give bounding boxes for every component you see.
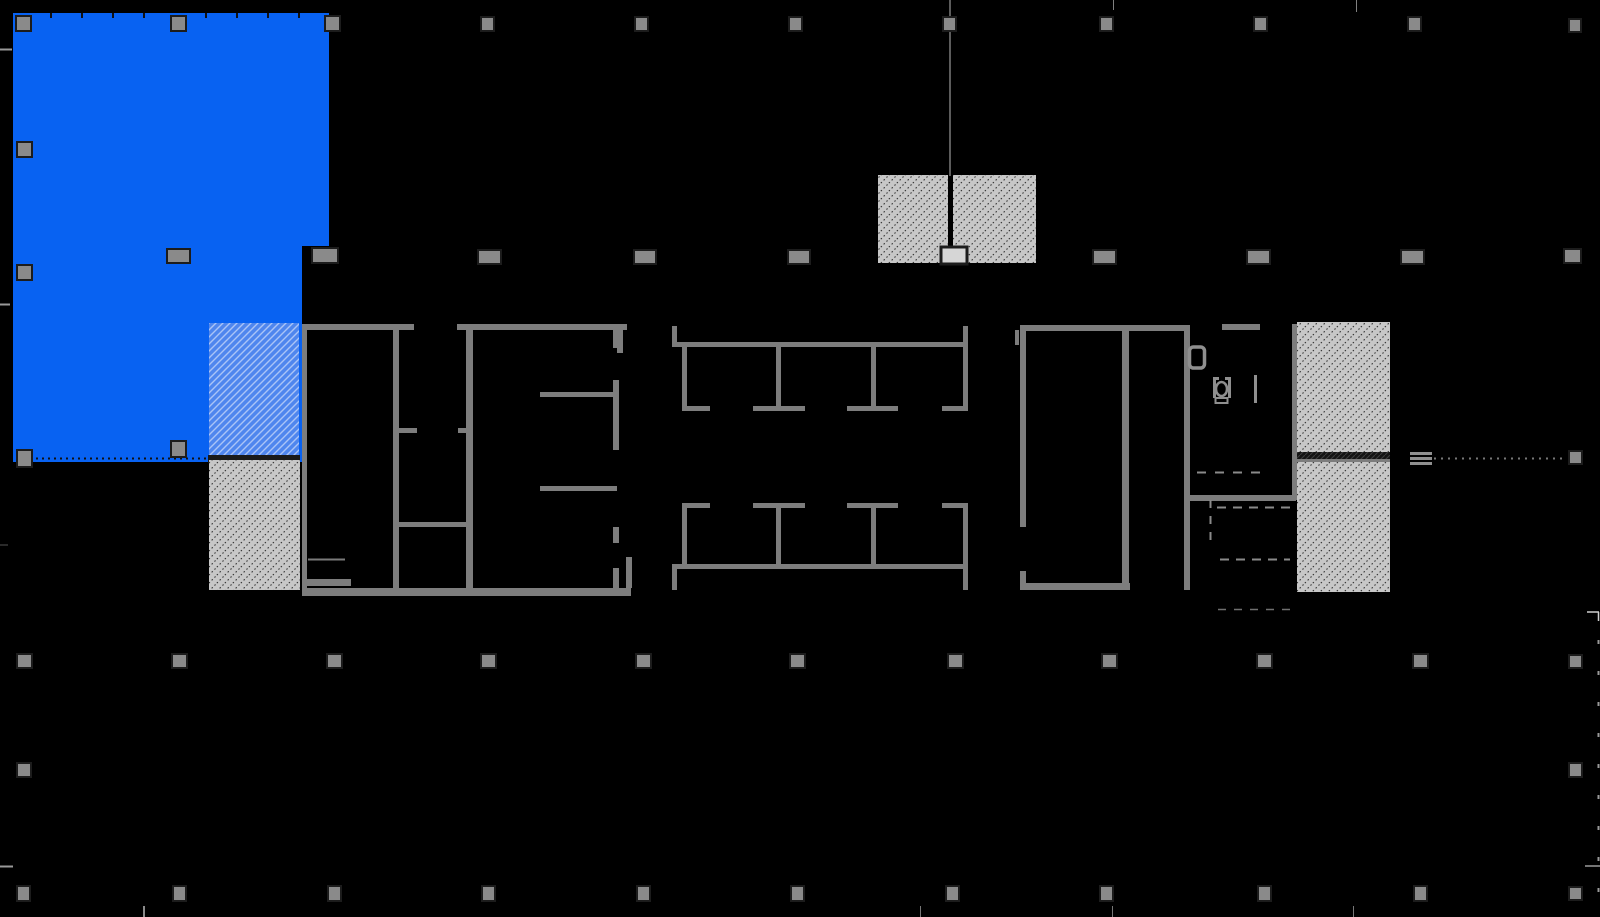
wall-segment: [1020, 325, 1188, 331]
grid-column: [312, 248, 338, 263]
grid-column: [1569, 451, 1582, 464]
wall-segment: [672, 326, 677, 347]
grid-column: [17, 763, 31, 777]
window-mullion-tick: [236, 13, 238, 18]
window-mullion-tick: [50, 13, 52, 18]
grid-column: [482, 886, 495, 901]
wall-segment: [682, 347, 687, 409]
toilet-icon: [1225, 377, 1231, 380]
window-mullion-tick: [205, 13, 207, 18]
grid-column: [17, 450, 32, 467]
door-icon: [1190, 347, 1205, 368]
steps-symbol-bar: [1410, 462, 1432, 465]
grid-column: [1569, 19, 1581, 32]
wall-segment: [1222, 324, 1260, 330]
grid-column: [1102, 654, 1117, 668]
grid-column: [1401, 250, 1424, 264]
grid-column: [1247, 250, 1270, 264]
wall-segment: [613, 380, 619, 450]
grid-column: [1569, 887, 1582, 900]
service-area-hatch: [878, 175, 948, 263]
wall-segment: [942, 503, 968, 508]
grid-column: [1408, 17, 1421, 31]
grid-column: [17, 142, 32, 157]
steps-symbol-bar: [1410, 452, 1432, 455]
wall-segment: [682, 508, 687, 569]
wall-segment: [871, 508, 876, 569]
wall-segment: [399, 522, 473, 527]
grid-column: [636, 654, 651, 668]
wall-segment: [963, 326, 968, 347]
wall-segment: [617, 326, 623, 353]
wall-segment: [963, 347, 968, 409]
wall-segment: [302, 579, 351, 586]
wall-segment: [1292, 324, 1297, 500]
grid-column: [1413, 654, 1428, 668]
grid-column: [478, 250, 501, 264]
wall-segment: [682, 406, 710, 411]
wall-segment: [1188, 495, 1296, 501]
wall-segment: [540, 486, 617, 491]
service-area-hatch: [1297, 462, 1390, 592]
grid-column: [328, 886, 341, 901]
grid-column: [1569, 655, 1582, 668]
wall-segment: [302, 325, 307, 596]
selection-overlay-layer: [13, 13, 329, 463]
grid-column: [481, 654, 496, 668]
wall-segment: [1122, 331, 1129, 590]
floor-plan-canvas[interactable]: [0, 0, 1600, 917]
wall-segment: [1020, 583, 1130, 590]
toilet-icon: [1228, 377, 1231, 398]
grid-column: [1100, 886, 1113, 901]
wall-segment: [942, 406, 968, 411]
wall-segment: [677, 342, 963, 347]
window-mullion-tick: [143, 13, 145, 18]
wall-segment: [871, 347, 876, 408]
window-mullion-tick: [267, 13, 269, 18]
grid-column: [1258, 886, 1271, 901]
wall-segment: [682, 503, 710, 508]
grid-column: [943, 17, 956, 31]
grid-column: [171, 16, 186, 31]
grid-column: [1093, 250, 1116, 264]
grid-column: [17, 265, 32, 280]
grid-column: [791, 886, 804, 901]
wall-segment: [457, 324, 627, 330]
grid-column: [790, 654, 805, 668]
bathroom-partition-line: [1254, 375, 1257, 403]
wall-segment: [399, 428, 417, 433]
wall-segment: [677, 564, 963, 569]
toilet-icon: [1216, 382, 1227, 396]
grid-column: [788, 250, 810, 264]
grid-column: [946, 886, 959, 901]
floor-plan-viewport[interactable]: [0, 0, 1600, 917]
wall-segment: [1020, 325, 1026, 527]
wall-segment: [540, 392, 617, 397]
service-area-hatch: [209, 460, 300, 590]
wall-segment: [626, 557, 632, 588]
grid-column: [789, 17, 802, 31]
window-mullion-tick: [298, 13, 300, 18]
wall-segment: [672, 564, 677, 590]
wall-segment: [1297, 459, 1390, 462]
wall-segment: [466, 330, 473, 596]
wall-segment: [1015, 330, 1019, 345]
grid-column: [173, 886, 186, 901]
wall-segment: [963, 564, 968, 590]
grid-column: [16, 16, 31, 31]
wall-segment: [613, 527, 619, 543]
grid-column: [172, 654, 187, 668]
wall-segment: [753, 503, 805, 508]
grid-column: [1257, 654, 1272, 668]
grid-column: [1414, 886, 1427, 901]
wall-segment: [753, 406, 805, 411]
grid-column: [327, 654, 342, 668]
grid-column: [481, 17, 494, 31]
steps-symbol-bar: [1410, 457, 1432, 460]
walls-layer: [302, 324, 1390, 596]
grid-column: [1564, 249, 1581, 263]
service-area-hatch: [1297, 322, 1390, 453]
wall-segment: [847, 406, 898, 411]
grid-column: [637, 886, 650, 901]
toilet-icon: [1216, 398, 1228, 403]
grid-column: [635, 17, 648, 31]
wall-segment: [963, 508, 968, 569]
grid-column: [171, 441, 186, 457]
wall-segment: [776, 508, 781, 569]
window-mullion-tick: [112, 13, 114, 18]
grid-column: [325, 16, 340, 31]
wall-segment: [393, 330, 399, 588]
grid-column: [634, 250, 656, 264]
counter-line: [308, 559, 345, 561]
grid-column: [948, 654, 963, 668]
selected-suite-hatched-area: [209, 323, 299, 457]
grid-column-outlined: [941, 247, 967, 264]
grid-column: [1254, 17, 1267, 31]
wall-segment: [776, 347, 781, 408]
grid-column: [1100, 17, 1113, 31]
grid-column: [167, 249, 190, 263]
wall-segment: [613, 568, 619, 588]
grid-column: [17, 886, 30, 901]
toilet-icon: [1213, 377, 1219, 380]
grid-column: [1569, 763, 1582, 777]
wall-segment: [302, 324, 414, 330]
wall-segment: [847, 503, 898, 508]
grid-column: [17, 654, 32, 668]
window-mullion-tick: [81, 13, 83, 18]
